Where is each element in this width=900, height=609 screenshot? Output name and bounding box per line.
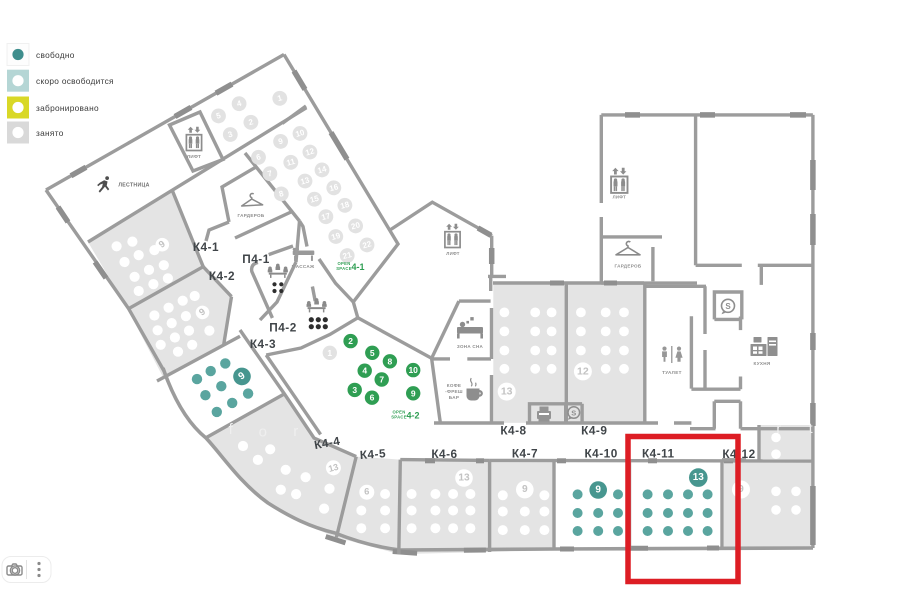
svg-text:ЛЕСТНИЦА: ЛЕСТНИЦА — [118, 183, 149, 189]
svg-text:К4-8: К4-8 — [500, 424, 526, 438]
svg-text:К4-10: К4-10 — [584, 446, 617, 460]
svg-text:7: 7 — [379, 375, 384, 385]
svg-text:П4-1: П4-1 — [242, 252, 270, 266]
svg-text:r: r — [293, 423, 299, 440]
svg-text:скоро освободится: скоро освободится — [36, 76, 114, 86]
svg-text:9: 9 — [522, 484, 528, 495]
svg-text:-ФРЕШ: -ФРЕШ — [445, 389, 463, 394]
svg-text:12: 12 — [577, 365, 589, 377]
svg-text:9: 9 — [411, 388, 416, 398]
svg-text:занято: занято — [36, 128, 64, 138]
svg-text:К4-5: К4-5 — [359, 446, 386, 462]
svg-text:10: 10 — [408, 365, 418, 375]
svg-text:ЛИФТ: ЛИФТ — [613, 194, 627, 199]
svg-text:13: 13 — [501, 386, 513, 398]
svg-text:К4-1: К4-1 — [193, 240, 219, 254]
svg-text:ГАРДЕРОБ: ГАРДЕРОБ — [614, 264, 641, 269]
svg-text:забронировано: забронировано — [36, 103, 99, 113]
svg-text:13: 13 — [458, 473, 470, 484]
svg-text:S: S — [725, 302, 731, 311]
svg-text:ТУАЛЕТ: ТУАЛЕТ — [662, 370, 682, 375]
svg-text:o: o — [259, 424, 268, 441]
svg-text:4-2: 4-2 — [406, 411, 419, 421]
svg-text:1: 1 — [327, 348, 332, 358]
svg-text:5: 5 — [370, 348, 375, 358]
svg-text:К4-6: К4-6 — [431, 447, 457, 461]
svg-text:БАР: БАР — [449, 395, 459, 400]
svg-text:t: t — [809, 420, 813, 436]
svg-text:4-1: 4-1 — [351, 262, 364, 272]
svg-text:9: 9 — [595, 485, 601, 496]
svg-text:6: 6 — [364, 487, 369, 498]
svg-text:13: 13 — [693, 472, 705, 483]
svg-text:ГАРДЕРОБ: ГАРДЕРОБ — [237, 213, 264, 218]
svg-text:свободно: свободно — [36, 50, 75, 60]
svg-text:f: f — [229, 421, 234, 438]
svg-text:4: 4 — [362, 366, 367, 376]
svg-text:КУХНЯ: КУХНЯ — [754, 361, 771, 366]
svg-text:К4-7: К4-7 — [512, 446, 538, 460]
svg-text:ЗОНА СНА: ЗОНА СНА — [457, 344, 484, 349]
svg-text:К4-11: К4-11 — [642, 446, 675, 460]
svg-text:SPACE: SPACE — [336, 266, 352, 271]
svg-text:ЛИФТ: ЛИФТ — [187, 154, 201, 159]
svg-text:6: 6 — [370, 393, 375, 403]
svg-text:8: 8 — [388, 356, 393, 366]
svg-text:2: 2 — [348, 336, 353, 346]
svg-text:К4-3: К4-3 — [250, 337, 276, 351]
svg-text:SPACE: SPACE — [391, 415, 407, 420]
svg-text:3: 3 — [352, 385, 357, 395]
svg-text:К4-2: К4-2 — [209, 269, 235, 283]
svg-text:S: S — [571, 409, 576, 418]
svg-text:К4-9: К4-9 — [581, 424, 607, 438]
svg-text:П4-2: П4-2 — [269, 321, 297, 335]
svg-text:ЛИФТ: ЛИФТ — [446, 251, 460, 256]
svg-text:КОФЕ: КОФЕ — [447, 383, 462, 388]
svg-text:r: r — [776, 420, 781, 436]
